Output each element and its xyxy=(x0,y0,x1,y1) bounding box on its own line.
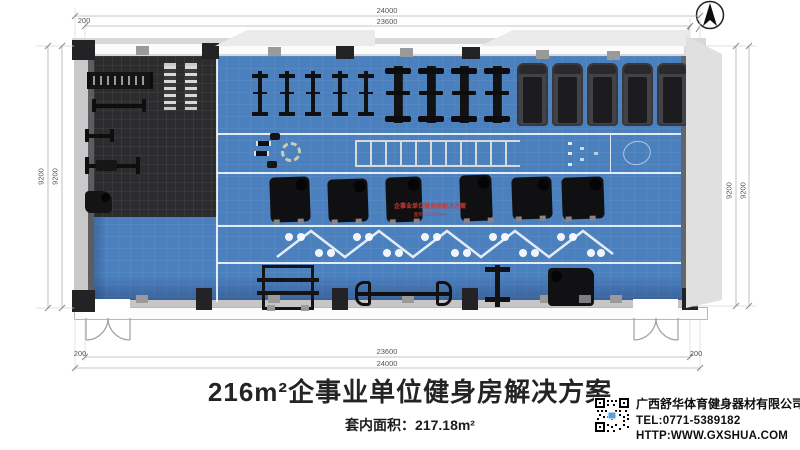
mini-mat xyxy=(267,161,277,168)
title-block: 216m²企事业单位健身房解决方案 套内面积：217.18m² xyxy=(160,372,660,435)
wall-tick xyxy=(136,295,148,303)
column xyxy=(336,45,354,59)
wall-tick xyxy=(268,47,281,56)
elliptical xyxy=(303,71,323,116)
column xyxy=(462,47,480,59)
plate-rack xyxy=(164,63,176,110)
flat-bench xyxy=(92,99,146,112)
wall-tick xyxy=(607,51,620,60)
company-website: HTTP:WWW.GXSHUA.COM xyxy=(636,430,796,442)
wall-tick xyxy=(136,46,149,55)
agility-ladder xyxy=(355,140,520,167)
spin-bike xyxy=(484,66,510,123)
blueprint-page: 企事业单位健身房解决方案 面积:216.57m² xyxy=(0,0,800,450)
column xyxy=(72,40,95,60)
elliptical xyxy=(356,71,376,116)
spin-bike xyxy=(418,66,444,123)
treadmill xyxy=(622,63,653,126)
strength-machine xyxy=(269,176,311,222)
plate-machine xyxy=(548,268,594,306)
bench-press xyxy=(85,157,140,174)
power-rack xyxy=(262,265,314,310)
yoga-ring xyxy=(281,142,301,162)
plan-annotation-area: 面积:216.57m² xyxy=(385,212,475,219)
column xyxy=(332,288,348,310)
plan-annotation-title: 企事业单位健身房解决方案 xyxy=(385,204,475,212)
elliptical xyxy=(250,71,270,116)
plate-rack xyxy=(185,63,197,110)
mini-dumbbell xyxy=(254,151,269,156)
company-name: 广西舒华体育健身器材有限公司 xyxy=(636,395,796,412)
vertical-machine xyxy=(485,265,510,307)
treadmill xyxy=(552,63,583,126)
preacher-bench xyxy=(85,191,112,213)
company-tel: TEL:0771-5389182 xyxy=(636,415,796,427)
plan-annotation: 企事业单位健身房解决方案 面积:216.57m² xyxy=(385,204,475,218)
strength-machine xyxy=(511,176,552,219)
dim-left-inner: 9200 xyxy=(51,162,60,192)
dumbbell-rack xyxy=(87,72,153,89)
page-title: 216m²企事业单位健身房解决方案 xyxy=(160,372,660,409)
barbell-rack xyxy=(355,281,452,306)
strength-machine xyxy=(327,178,368,222)
qr-code xyxy=(594,397,630,433)
wall-tick xyxy=(536,50,549,59)
treadmill xyxy=(517,63,548,126)
spin-bike xyxy=(451,66,477,123)
area-label: 套内面积：217.18m² xyxy=(160,415,660,435)
column xyxy=(462,288,478,310)
dim-bottom-offset-right: 200 xyxy=(686,349,706,358)
dim-right-inner: 9200 xyxy=(725,176,734,206)
dim-top-inner: 23600 xyxy=(357,17,417,26)
elliptical xyxy=(330,71,350,116)
dim-right-outer: 9200 xyxy=(739,176,748,206)
column xyxy=(682,288,698,310)
treadmill xyxy=(657,63,688,126)
mini-mat xyxy=(270,133,280,140)
accessory-bench xyxy=(85,129,114,142)
strength-machine xyxy=(561,176,604,219)
stretch-marks xyxy=(560,134,656,172)
dim-bottom-offset-left: 200 xyxy=(70,349,90,358)
column xyxy=(196,288,212,310)
wall-tick xyxy=(400,48,413,57)
elliptical xyxy=(277,71,297,116)
dim-bottom-outer: 24000 xyxy=(357,359,417,368)
wall-tick xyxy=(610,295,622,303)
column xyxy=(202,43,219,59)
dim-top-outer: 24000 xyxy=(357,6,417,15)
column xyxy=(72,290,95,312)
spin-bike xyxy=(385,66,411,123)
treadmill xyxy=(587,63,618,126)
dim-top-offset: 200 xyxy=(74,16,94,25)
dim-left-outer: 9200 xyxy=(37,162,46,192)
dim-bottom-inner: 23600 xyxy=(357,347,417,356)
qr-logo xyxy=(608,412,616,419)
column xyxy=(688,56,702,72)
mini-dumbbell xyxy=(256,141,271,146)
